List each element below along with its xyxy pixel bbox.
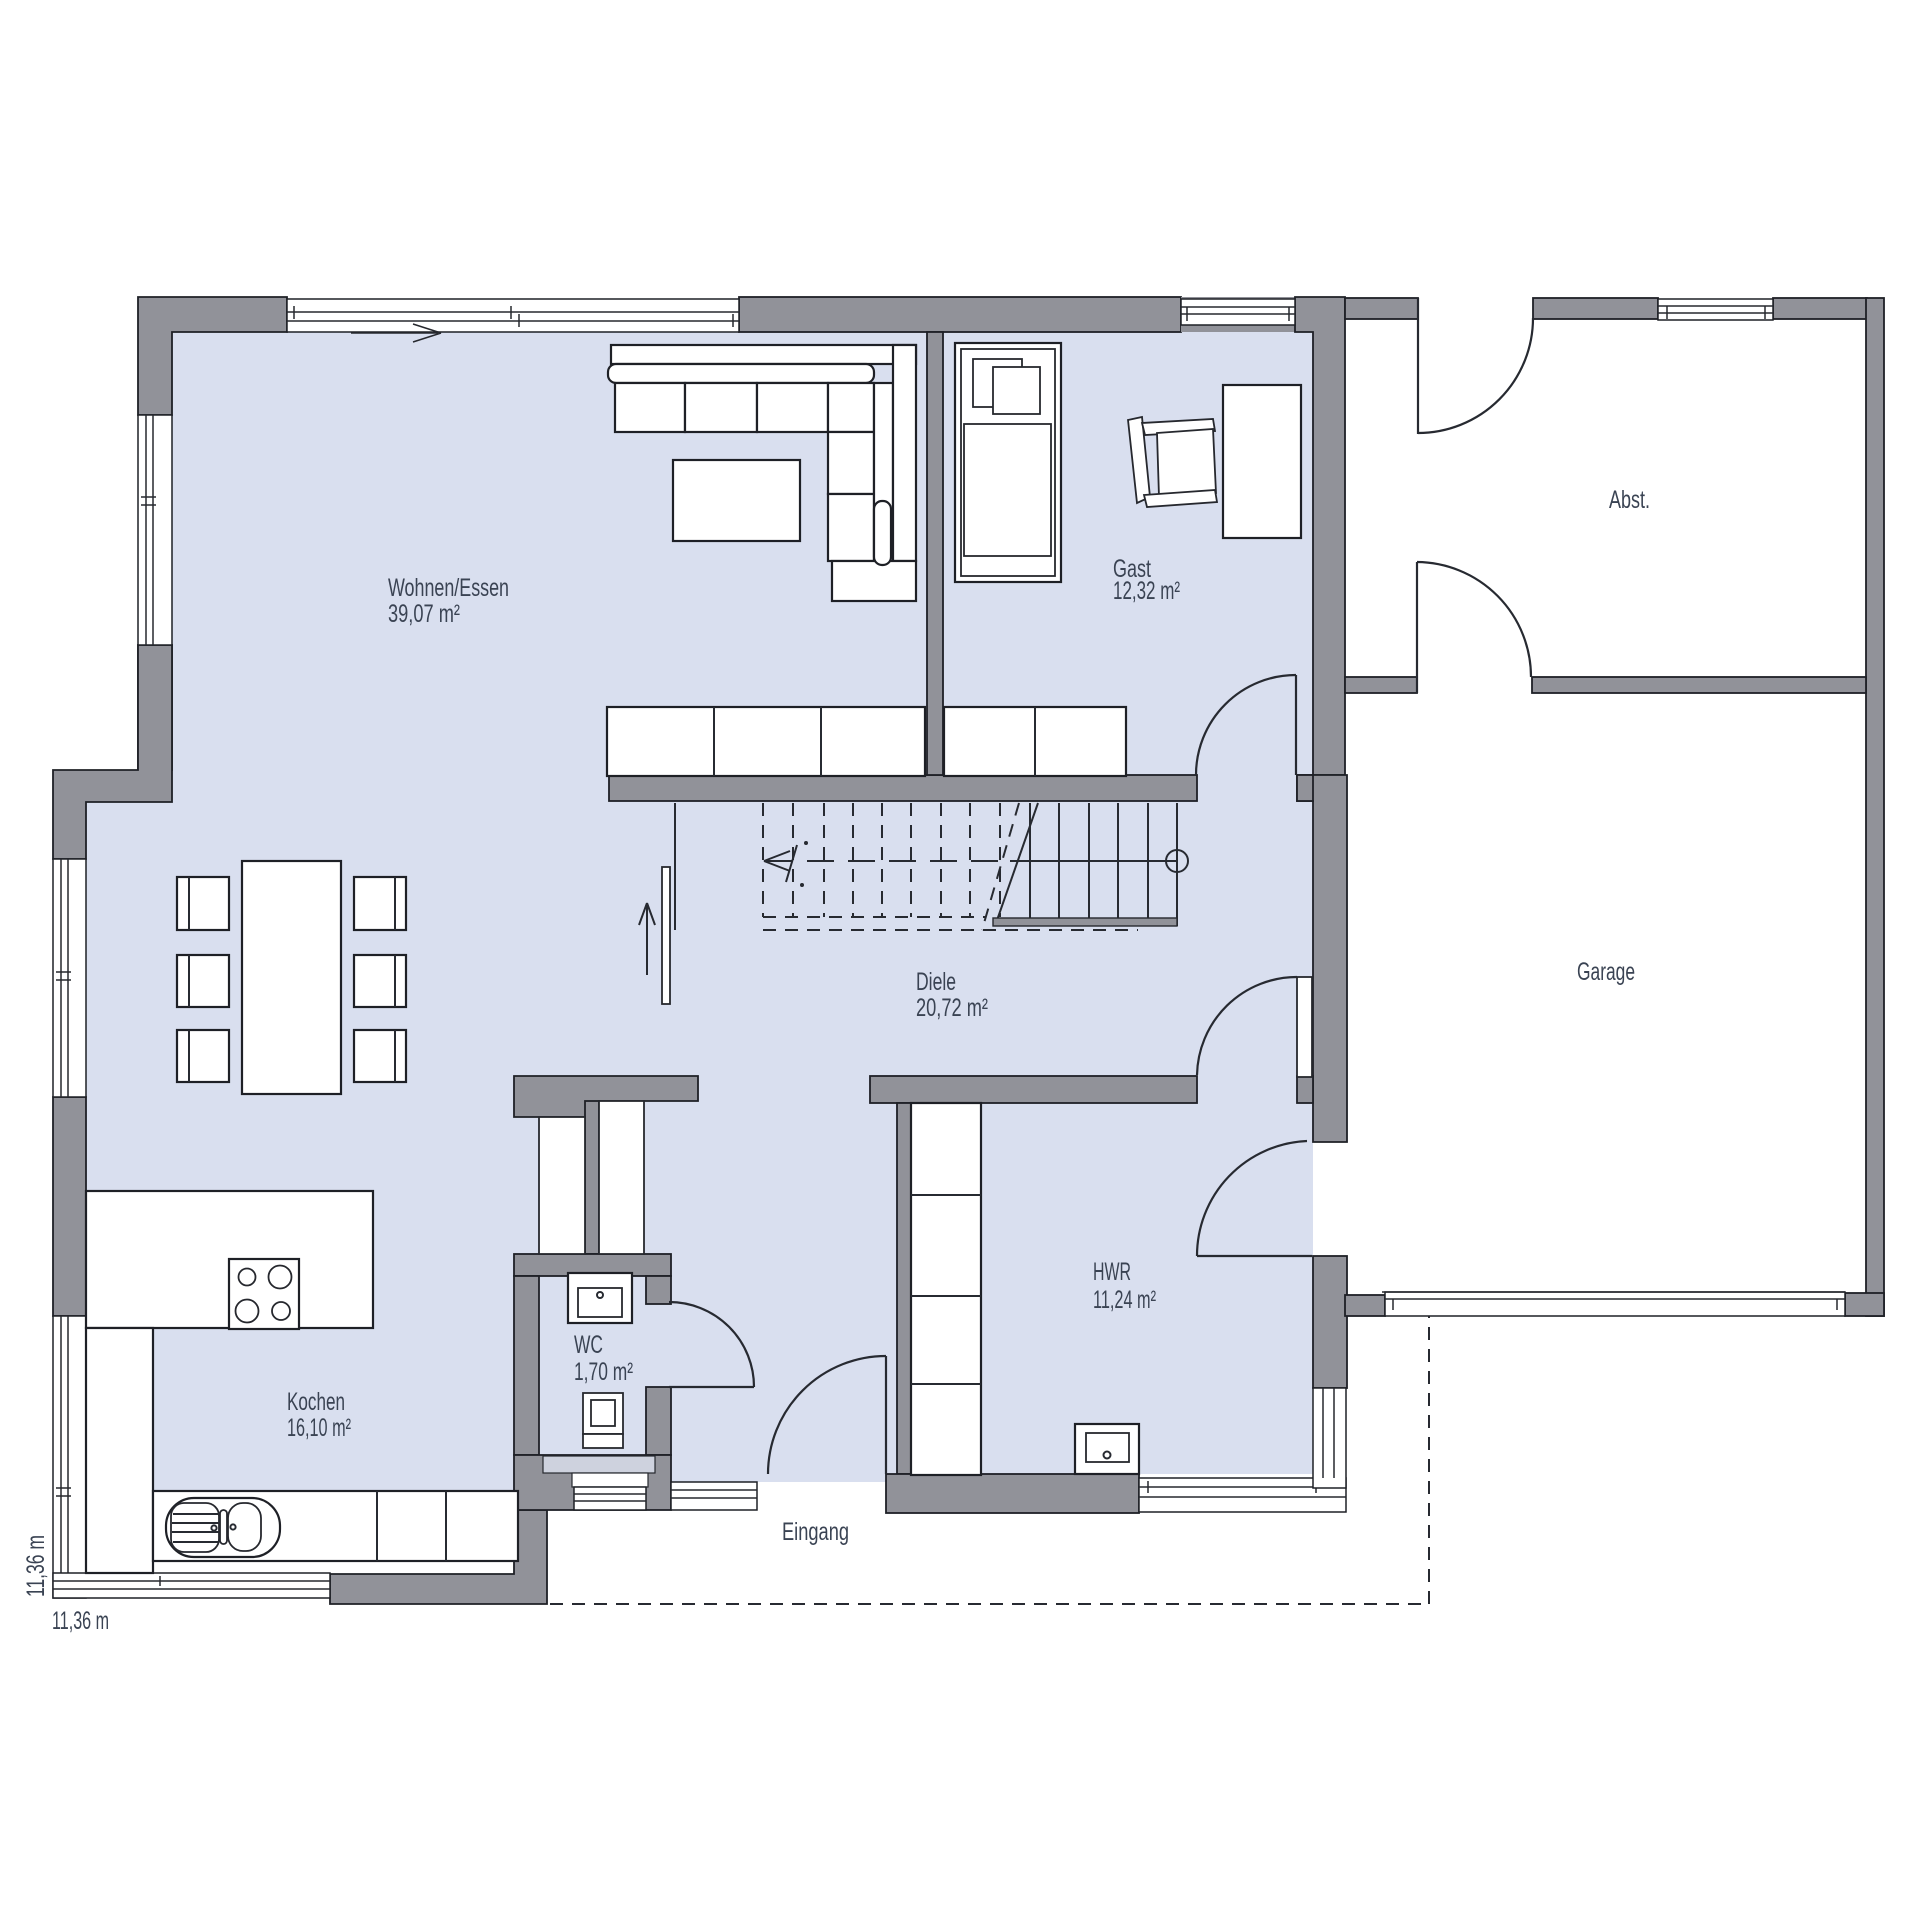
svg-text:11,24 m²: 11,24 m² — [1093, 1286, 1156, 1314]
svg-text:16,10 m²: 16,10 m² — [287, 1414, 351, 1442]
svg-text:HWR: HWR — [1093, 1258, 1131, 1286]
svg-text:20,72 m²: 20,72 m² — [916, 994, 988, 1022]
svg-text:WC: WC — [574, 1331, 603, 1359]
svg-text:11,36 m: 11,36 m — [52, 1607, 109, 1635]
svg-text:Abst.: Abst. — [1609, 486, 1650, 514]
svg-text:1,70 m²: 1,70 m² — [574, 1358, 633, 1386]
svg-text:Wohnen/Essen: Wohnen/Essen — [388, 574, 509, 602]
svg-text:Eingang: Eingang — [782, 1518, 849, 1546]
svg-text:12,32 m²: 12,32 m² — [1113, 577, 1180, 605]
svg-text:11,36 m: 11,36 m — [22, 1535, 50, 1597]
svg-text:Kochen: Kochen — [287, 1388, 345, 1416]
svg-text:Garage: Garage — [1577, 958, 1635, 986]
svg-text:39,07 m²: 39,07 m² — [388, 600, 460, 628]
svg-text:Diele: Diele — [916, 968, 956, 996]
